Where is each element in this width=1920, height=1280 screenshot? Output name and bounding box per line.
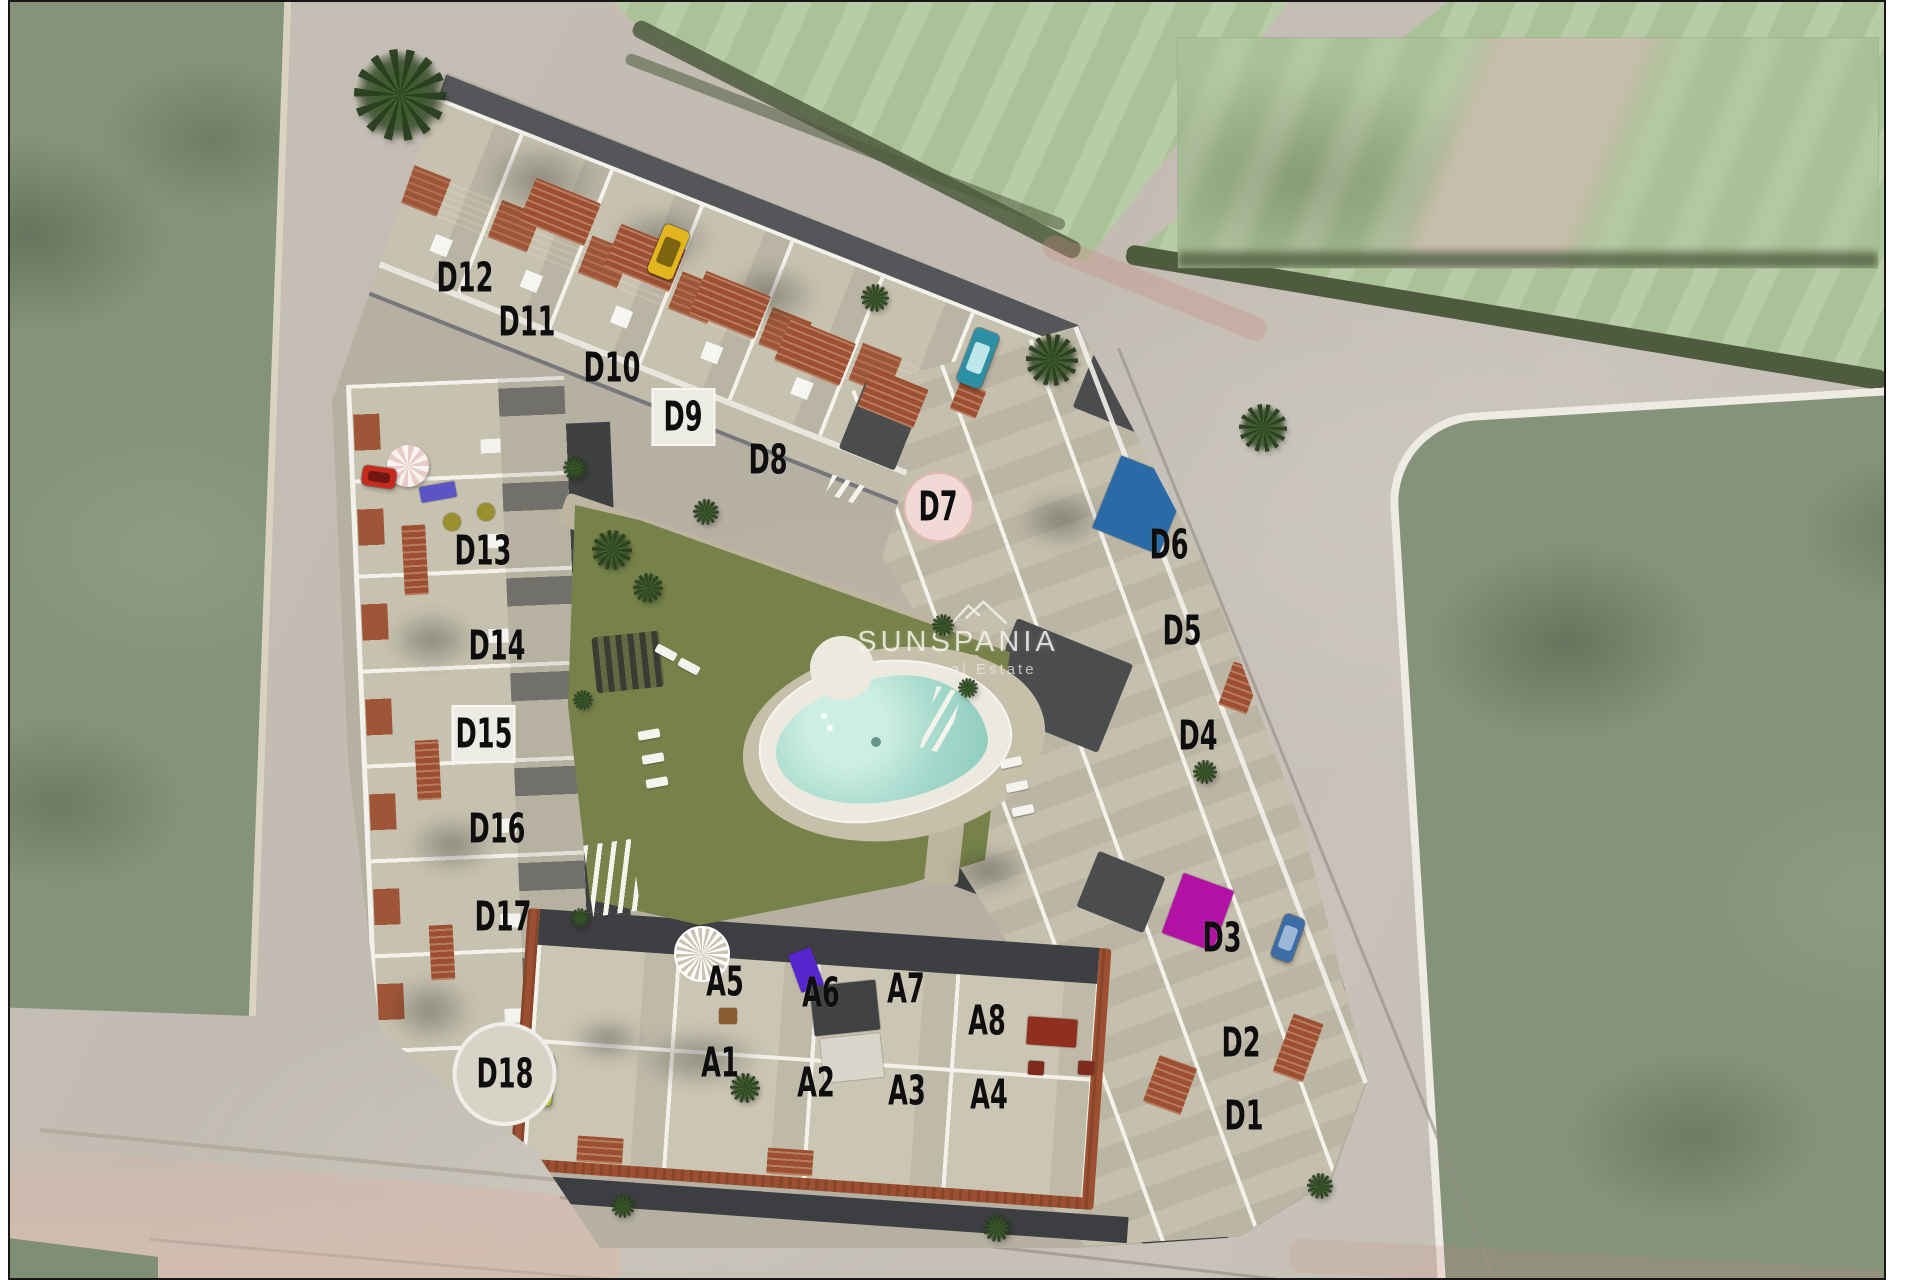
unit-label-A2: A2 [787,1063,846,1103]
unit-label-text: A8 [968,1001,1006,1042]
unit-label-D4: D4 [1167,716,1228,756]
terracotta-roof-patch [766,1147,814,1176]
palm-tree-icon [573,690,593,710]
pool-kidney-notch [810,636,874,700]
unit-label-D5: D5 [1151,611,1212,651]
unit-label-A1: A1 [691,1043,750,1083]
unit-label-text: A2 [797,1063,835,1104]
pool-step [821,713,827,719]
blurred-hedge [1178,252,1878,268]
unit-label-text: D9 [663,397,702,438]
unit-label-text: D15 [456,714,513,755]
building-shadow [385,975,475,1045]
palm-tree-icon [1307,1173,1333,1199]
car-roof [367,470,390,483]
unit-label-D7: D7 [907,487,968,527]
building-shadow [568,1015,648,1065]
car-roof [655,236,681,268]
a4-red-seat [1028,1060,1045,1075]
unit-label-text: A1 [701,1043,739,1084]
unit-label-text: A7 [887,969,925,1010]
terracotta-roof-patch [414,739,441,800]
a5-table [719,1008,737,1024]
unit-label-text: D8 [748,440,787,481]
unit-label-text: D12 [437,258,494,299]
car-roof [1277,924,1298,951]
blurred-patch-overlay [1178,38,1878,268]
unit-label-A8: A8 [958,1001,1017,1041]
page-margin-right [1886,0,1920,1280]
terracotta-roof-patch [429,924,456,980]
unit-label-text: A6 [802,973,840,1014]
aerial-site-plan-image: SUNSPANIA Real Estate D12D11D10D9D8D7D6D… [0,0,1920,1280]
unit-label-A4: A4 [960,1075,1019,1115]
unit-label-D16: D16 [453,809,542,849]
unit-label-text: D13 [455,531,512,572]
unit-label-D17: D17 [459,897,548,937]
a4-red-table [1026,1016,1078,1047]
unit-label-D15: D15 [440,714,529,754]
right-green-field [1385,378,1920,1280]
unit-label-text: D3 [1202,918,1241,959]
unit-label-A3: A3 [878,1071,937,1111]
terracotta-roof-patch [401,524,429,595]
palm-tree-icon [570,908,590,928]
unit-label-D18: D18 [461,1054,550,1094]
unit-label-D13: D13 [439,531,528,571]
palm-tree-icon [693,499,719,525]
palm-tree-icon [1193,760,1217,784]
palm-tree-icon [592,530,632,570]
palm-tree-icon [1026,334,1078,386]
left-green-field [0,0,292,1016]
palm-tree-icon [861,284,889,312]
pergola [591,631,664,694]
garden-dot [477,503,495,521]
unit-label-text: D4 [1178,716,1217,757]
unit-label-D14: D14 [453,626,542,666]
palm-tree-icon [611,1194,635,1218]
unit-label-D12: D12 [421,258,510,298]
pool-step [827,725,833,731]
unit-label-text: D16 [469,809,526,850]
unit-label-D8: D8 [737,440,798,480]
pool-detail [871,737,881,747]
palm-tree-icon [932,614,954,636]
unit-label-D11: D11 [483,302,572,342]
unit-label-D1: D1 [1213,1096,1274,1136]
unit-label-A5: A5 [696,962,755,1002]
palm-tree-icon [633,573,663,603]
unit-label-D3: D3 [1191,918,1252,958]
unit-label-D10: D10 [568,348,657,388]
building-shadow [1017,490,1107,550]
building-shadow [948,845,1028,895]
palm-tree-icon [958,678,978,698]
unit-label-text: D1 [1224,1096,1263,1137]
unit-label-text: A4 [970,1075,1008,1116]
palm-tree-icon [1239,404,1287,452]
unit-label-text: D18 [477,1054,534,1095]
page-margin-left [0,0,8,1280]
unit-label-text: D7 [918,487,957,528]
unit-label-D2: D2 [1210,1023,1271,1063]
unit-label-text: D17 [475,897,532,938]
unit-label-text: A3 [888,1071,926,1112]
unit-label-text: D6 [1149,525,1188,566]
a4-red-seat [1078,1060,1095,1075]
palm-tree-icon [983,1214,1011,1242]
unit-label-A6: A6 [792,973,851,1013]
unit-label-D6: D6 [1138,525,1199,565]
blurred-field-content [1178,38,1878,268]
unit-label-D9: D9 [652,397,713,437]
terracotta-roof-patch [576,1135,624,1164]
unit-label-text: D2 [1221,1023,1260,1064]
palm-tree-icon [563,456,587,480]
palm-tree-icon [354,49,446,141]
unit-label-text: D11 [499,302,556,343]
car-roof [965,341,991,375]
unit-label-text: D10 [584,348,641,389]
unit-label-text: D14 [469,626,526,667]
unit-label-text: D5 [1162,611,1201,652]
unit-label-A7: A7 [877,969,936,1009]
striped-walkway [583,839,641,917]
unit-label-text: A5 [706,962,744,1003]
